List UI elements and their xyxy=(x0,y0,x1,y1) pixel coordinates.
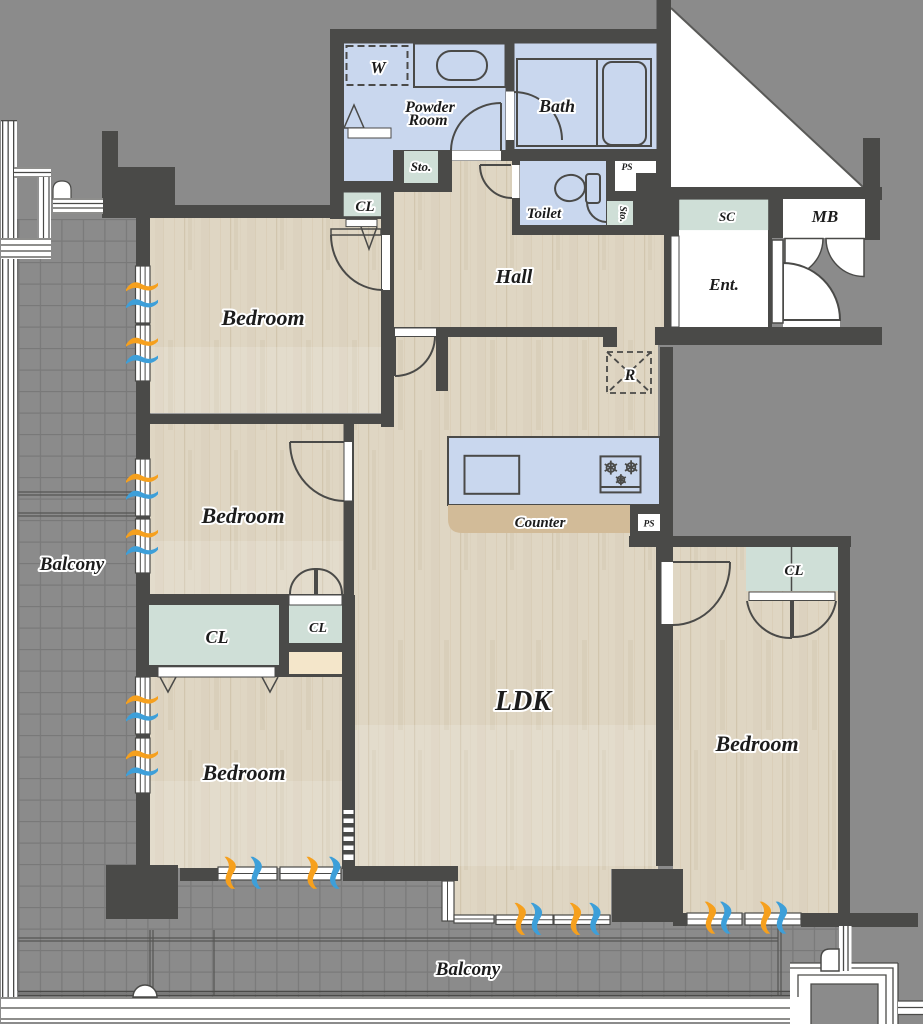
svg-text:Counter: Counter xyxy=(515,515,566,531)
svg-text:Bedroom: Bedroom xyxy=(201,760,285,785)
svg-text:SC: SC xyxy=(719,209,735,224)
svg-text:CL: CL xyxy=(784,563,803,579)
svg-text:LDK: LDK xyxy=(494,686,553,717)
svg-text:Sto.: Sto. xyxy=(617,206,628,222)
svg-text:Hall: Hall xyxy=(495,266,533,288)
svg-text:CL: CL xyxy=(355,199,374,215)
svg-text:Bedroom: Bedroom xyxy=(714,731,798,756)
svg-text:CL: CL xyxy=(309,621,327,636)
svg-text:PS: PS xyxy=(643,520,654,530)
svg-text:PS: PS xyxy=(621,163,632,173)
svg-text:CL: CL xyxy=(205,627,228,647)
svg-text:Balcony: Balcony xyxy=(435,959,501,980)
svg-text:Ent.: Ent. xyxy=(708,275,739,294)
svg-text:Room: Room xyxy=(407,112,447,129)
svg-text:Toilet: Toilet xyxy=(527,206,562,222)
svg-text:Bedroom: Bedroom xyxy=(200,503,284,528)
svg-text:R: R xyxy=(624,367,636,384)
svg-text:MB: MB xyxy=(811,207,838,226)
svg-text:Sto.: Sto. xyxy=(411,159,432,174)
svg-text:Bath: Bath xyxy=(538,96,575,116)
svg-text:Bedroom: Bedroom xyxy=(220,305,304,330)
svg-text:W: W xyxy=(370,58,387,77)
svg-text:Balcony: Balcony xyxy=(39,554,105,575)
